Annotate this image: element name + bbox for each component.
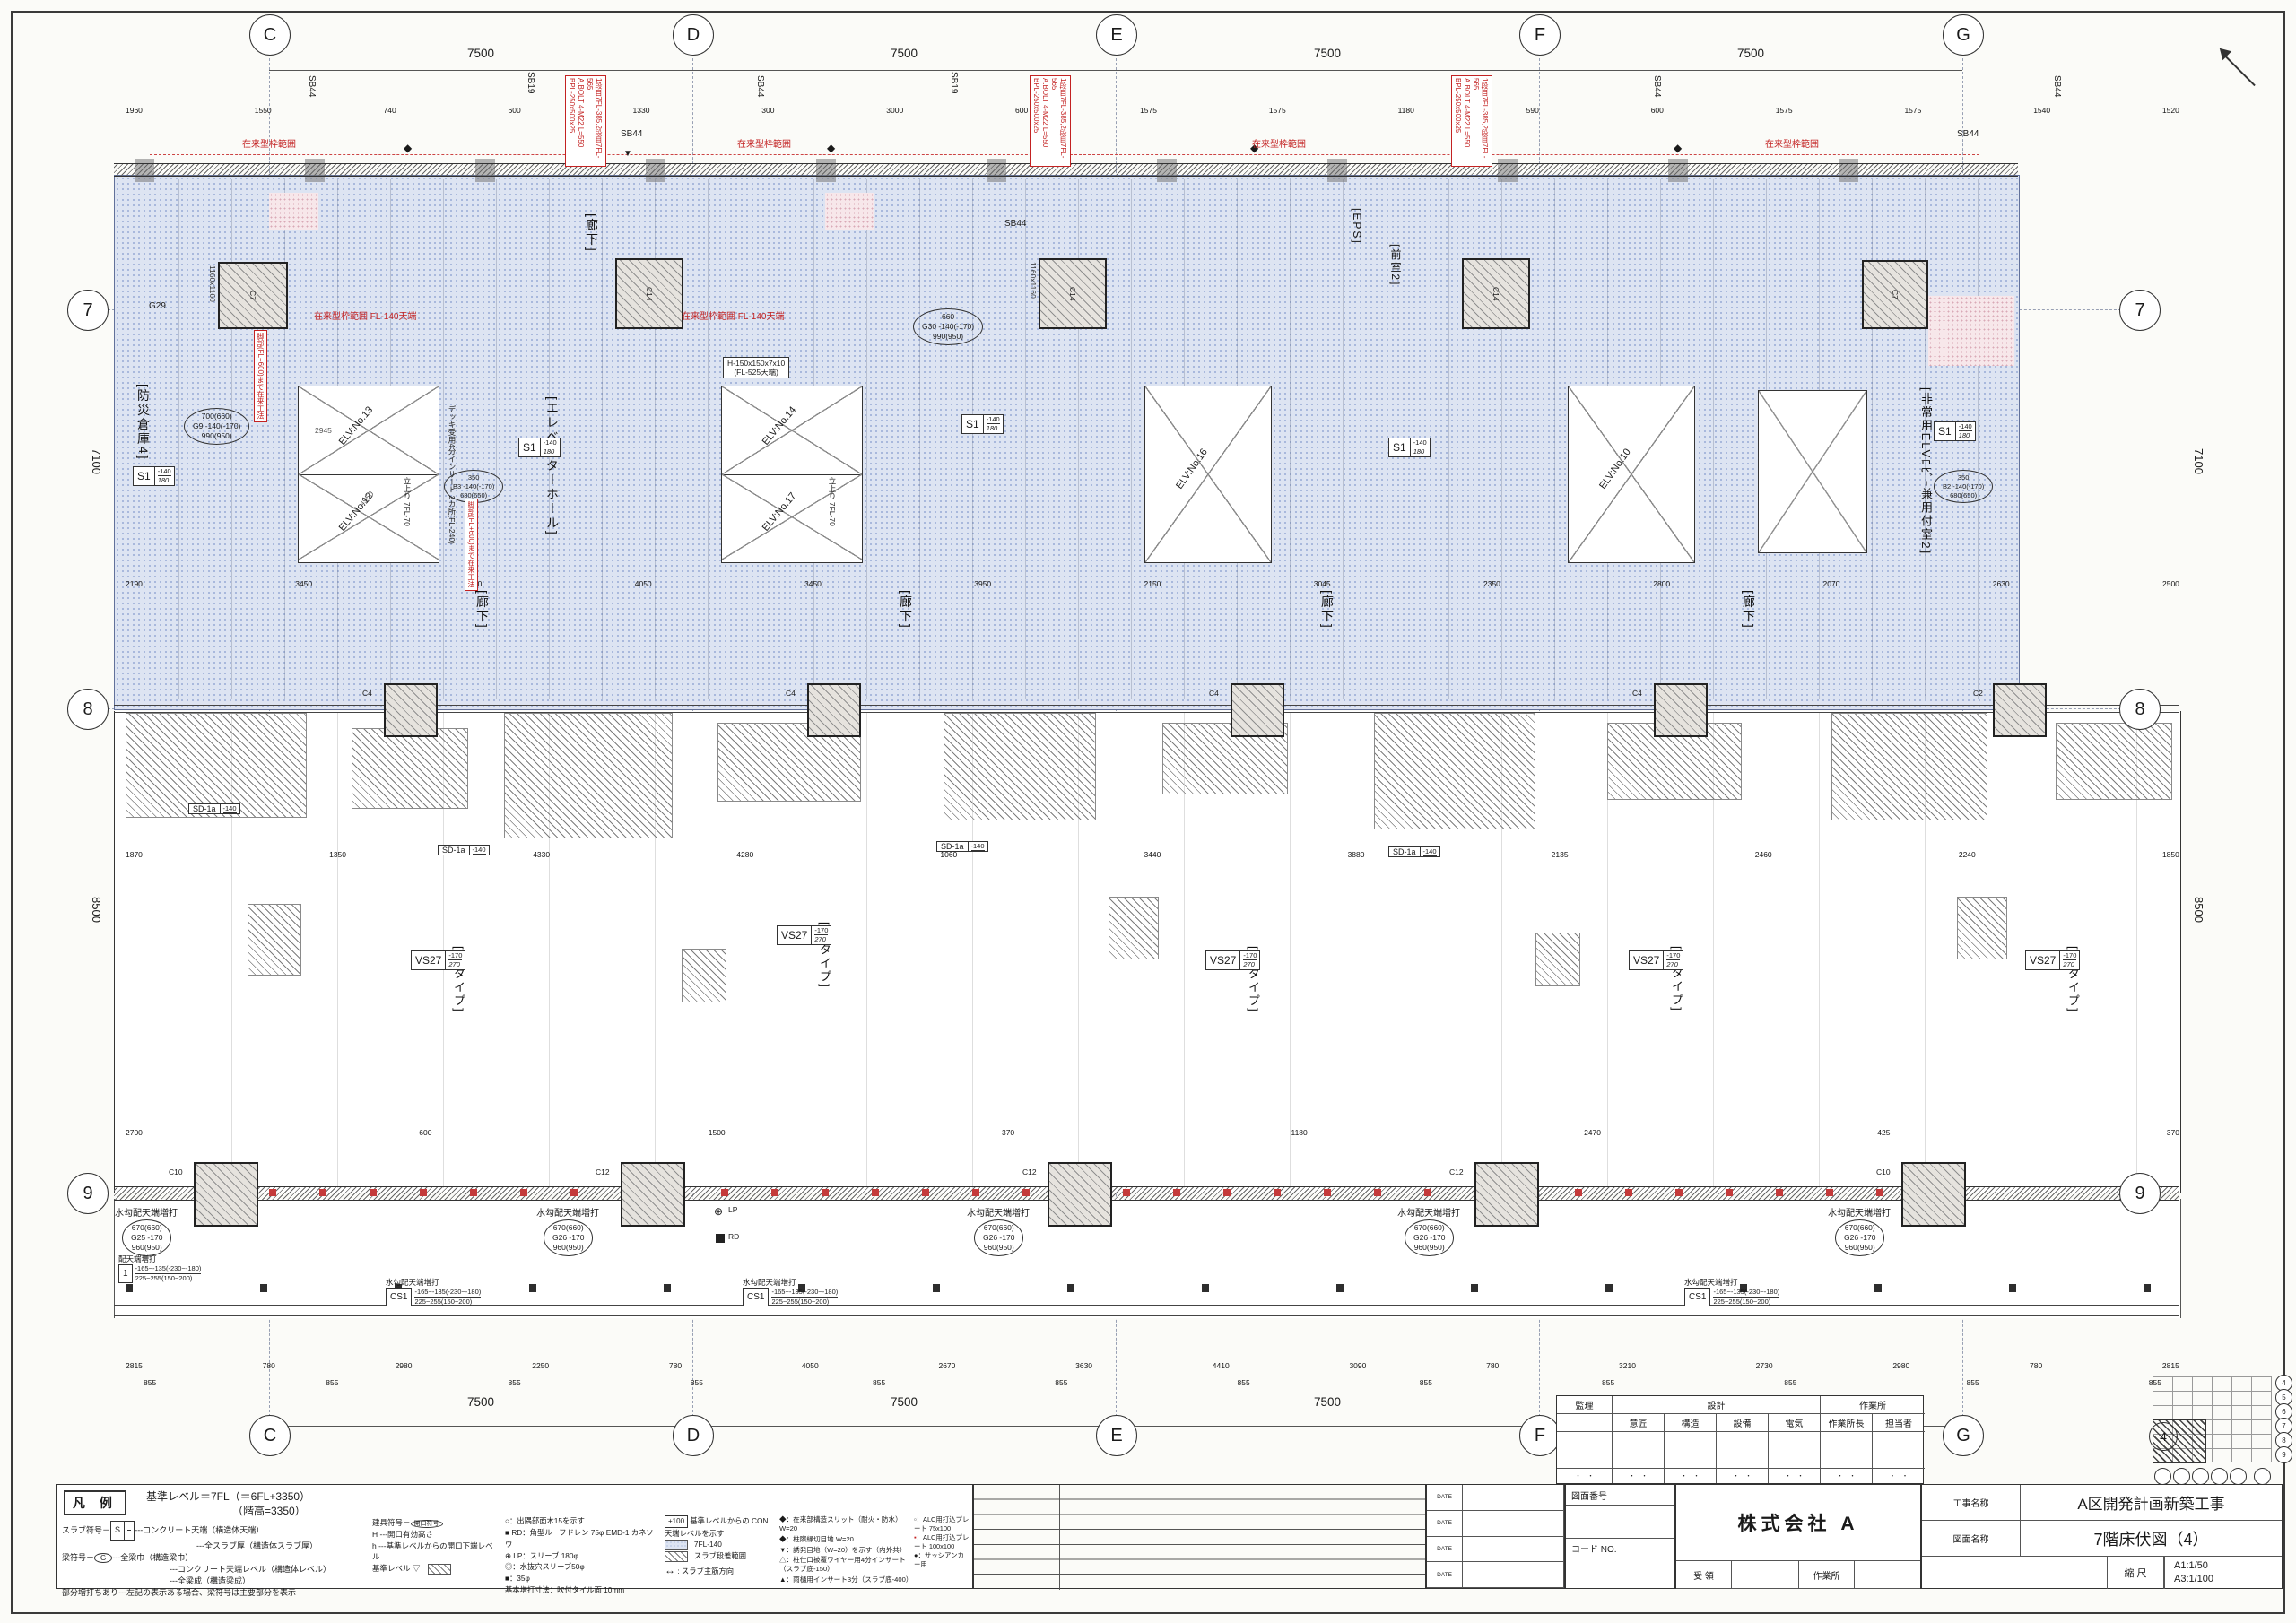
slab-thickness: 180 [158, 476, 171, 484]
slab-tag-S1: S1-140180 [133, 466, 175, 486]
baseplate-size: BPL-250x500x25 [1454, 78, 1462, 164]
column-tag-C4: C4 [1632, 689, 1642, 698]
legend-item: ◆：柱際縁切目地 W=20 [779, 1535, 910, 1544]
scale-a1: A1:1/50 [2174, 1559, 2282, 1573]
room-label-zenshitsu: [前室2] [1388, 244, 1404, 286]
column-size: 1160x1160 [208, 265, 217, 302]
drawing-title: 7階床伏図（4） [2021, 1521, 2282, 1556]
slab-step-hatch [248, 904, 301, 976]
legend-item: ◎：水抜穴スリーブ50φ [505, 1561, 659, 1573]
grid-bubble-G-bottom: G [1943, 1415, 1984, 1456]
date-dots: ・ ・ [1665, 1469, 1717, 1483]
dimension-text: 780 [669, 1361, 682, 1370]
slab-step-hatch [1374, 713, 1535, 829]
bay-dim: 7500 [1314, 47, 1341, 60]
slab-top-level: -170 [1666, 951, 1680, 960]
dimension-text: 4280 [736, 850, 753, 859]
drawing-sheet: C D E F G C D E F G 7 8 9 7 8 9 75007500… [0, 0, 2296, 1623]
date-dots: ・ ・ [1717, 1469, 1769, 1483]
beam-level: G26 -170 [552, 1233, 584, 1243]
legend-item: 基本増打寸法：吹付タイル面 10mm [505, 1584, 659, 1596]
alc-item-1: ▫：ALC用打込プレート 75x100 [914, 1515, 970, 1533]
worksite-person: 担当者 [1873, 1414, 1925, 1432]
code-number-value-empty [1566, 1558, 1674, 1588]
dimension-text: 1575 [1140, 106, 1157, 115]
column-tag: C7 [1891, 290, 1900, 299]
legend-symbols-left: スラブ符号－S ---コンクリート天端（構造体天端） ---全スラブ厚（構造体ス… [62, 1521, 331, 1599]
patch-pink-1 [269, 193, 318, 230]
dimension-text: 2815 [2162, 1361, 2179, 1370]
slab-tag-SD1a: SD-1a-140 [438, 845, 490, 855]
bay-dim: 7500 [891, 1395, 918, 1409]
plus100-icon: +100 [665, 1515, 688, 1528]
slab-step-hatch [1109, 897, 1159, 959]
dimension-text: 2815 [126, 1361, 143, 1370]
drawing-number-value-empty [1566, 1505, 1674, 1538]
dimension-text: 370 [1002, 1128, 1014, 1137]
slab-thickness: 180 [1413, 447, 1427, 456]
legend-item: ▲：雨樋用インサート3分（スラブ底-400） [779, 1575, 910, 1584]
balcony-edge-line-2 [114, 1315, 2179, 1316]
slope-note: 水勾配天端増打 [967, 1205, 1030, 1219]
date-label: DATE [1427, 1485, 1463, 1511]
slab-top-level: -170 [2063, 951, 2076, 960]
worksite-chief: 作業所長 [1821, 1414, 1873, 1432]
slab-top-level: -140 [971, 842, 985, 851]
grid-bubble-7-left: 7 [67, 290, 109, 331]
dimension-text: 3210 [1619, 1361, 1636, 1370]
legend-item: △：柱仕口被覆ワイヤー用4分インサート（スラブ底-150） [779, 1556, 910, 1574]
lp-sleeve-icon: ⊕ [714, 1205, 723, 1218]
dimension-text: 855 [873, 1378, 885, 1387]
beam-depth: 960(950) [983, 1243, 1014, 1253]
slab-tag-CS1: CS1 [743, 1288, 769, 1306]
blue-dots-desc: 7FL-140 [694, 1540, 722, 1549]
slab-top-level: -170 [1243, 951, 1257, 960]
beam-symbol-icon: G [94, 1553, 112, 1563]
room-label-elvhall: [エレベーターホール] [544, 396, 561, 536]
leg-note: 脚部(FL+600)まで在来工法 [254, 330, 267, 422]
beam-level: G25 -170 [131, 1233, 162, 1243]
grid-bubble-C-bottom: C [249, 1415, 291, 1456]
keyplan-col-bubble [2211, 1468, 2228, 1485]
dimension-text: 3450 [804, 579, 822, 588]
column-tag-C4: C4 [786, 689, 796, 698]
revision-table-divider [1059, 1485, 1060, 1590]
cs1-note: 水勾配天端増打 CS1 -165~-135(-230~-180)225~255(… [1684, 1277, 1779, 1306]
slope-note: 水勾配天端増打 [386, 1277, 481, 1288]
beam-width: 670(660) [1844, 1223, 1875, 1233]
scale-a3: A3:1/100 [2174, 1573, 2282, 1586]
beam-symbol-label: 梁符号 [62, 1553, 86, 1562]
slab-top-level: -165~-135(-230~-180) [135, 1264, 202, 1274]
slab-tag-1: 1 [118, 1264, 133, 1283]
baseplate-note: BPL-250x500x25A.BOLT 4-M22 L=5501段目7FL-3… [1451, 75, 1492, 167]
slab-tag-CS1: CS1 [386, 1288, 412, 1306]
bay-dim: 7500 [1737, 47, 1764, 60]
induced-joint-icon: ▼ [623, 149, 632, 159]
slab-tag-SD1a: SD-1a-140 [188, 803, 240, 814]
formwork-range-note: 在来型枠範囲 [242, 136, 296, 150]
slab-top-level: -140 [987, 415, 1000, 424]
dimension-text: 2350 [1483, 579, 1500, 588]
dimension-text: 1575 [1269, 106, 1286, 115]
elevator-shaft-4: ELV:No.10 [1568, 386, 1695, 563]
beam-level: G30 -140(-170) [922, 322, 974, 332]
grid-bubble-8-left: 8 [67, 689, 109, 730]
project-row: 工事名称 A区開発計画新築工事 [1922, 1485, 2282, 1521]
slab-top-level: -140 [1959, 422, 1972, 431]
slab-tag-S1: S1-140180 [961, 414, 1004, 434]
date-value-empty [1463, 1485, 1564, 1511]
formwork-range-note: 在来型枠範囲 [1252, 136, 1306, 150]
supervisor-header: 監理 [1557, 1396, 1613, 1414]
legend-alc-items: ▫：ALC用打込プレート 75x100 ▪：ALC用打込プレート 100x100… [914, 1515, 970, 1569]
beam-desc-1: ---全梁巾（構造梁巾） [112, 1553, 193, 1562]
formwork-range-note: 在来型枠範囲 [737, 136, 791, 150]
dimension-text: 3880 [1348, 850, 1365, 859]
top-dimension-line [269, 70, 1962, 71]
grid-bubble-C-top: C [249, 14, 291, 56]
company-bottom-row: 受 領 作業所 [1676, 1560, 1920, 1589]
drawing-number-label: 図面番号 [1566, 1485, 1674, 1505]
room-label-rouka: [廊下] [1740, 590, 1758, 629]
design-mech: 設備 [1717, 1414, 1769, 1432]
baseplate-note: BPL-250x500x25A.BOLT 4-M22 L=5501段目7FL-3… [1030, 75, 1071, 167]
code-number-label: コード NO. [1566, 1538, 1674, 1558]
column-C12-2 [1048, 1162, 1112, 1227]
bolt-levels: 1段目7FL-385,2段目7FL-565 [1472, 78, 1490, 164]
roof-drain-icon [716, 1234, 725, 1243]
column-tag-C10: C10 [169, 1167, 183, 1176]
anchor-bolt: A.BOLT 4-M22 L=550 [1041, 78, 1049, 164]
dimension-text: 3000 [886, 106, 903, 115]
slab-tag-symbol: SD-1a [439, 846, 470, 855]
column-tag: C14 [645, 287, 654, 301]
grid-bubble-G-top: G [1943, 14, 1984, 56]
scale-empty-cell [1922, 1557, 2107, 1589]
anchor-bolt: A.BOLT 4-M22 L=550 [577, 78, 585, 164]
column-C12-3 [1474, 1162, 1539, 1227]
title-block: 工事名称 A区開発計画新築工事 図面名称 7階床伏図（4） 縮 尺 A1:1/5… [1921, 1484, 2283, 1589]
dimension-text: 1850 [2162, 850, 2179, 859]
dimension-text: 855 [1602, 1378, 1614, 1387]
lp-label: LP [728, 1205, 737, 1214]
dimension-text: 740 [384, 106, 396, 115]
slab-desc-2: ---全スラブ厚（構造体スラブ厚） [196, 1541, 317, 1550]
grid-bubble-9-left: 9 [67, 1173, 109, 1214]
dimension-text: 2250 [532, 1361, 549, 1370]
door-desc-1: 開口有効高さ [387, 1530, 433, 1539]
hatch-desc: スラブ段差範囲 [694, 1551, 746, 1560]
date-value-empty [1463, 1537, 1564, 1563]
dimension-text: 1575 [1904, 106, 1921, 115]
slab-edge-note: 配天端増打 1 -165~-135(-230~-180)225~255(150~… [118, 1254, 201, 1283]
slope-note: 配天端増打 [118, 1254, 201, 1264]
slab-tag-VS27: VS27-170270 [1629, 950, 1683, 970]
grid-bubble-9-right: 9 [2119, 1173, 2161, 1214]
beam-depth: 960(950) [131, 1243, 162, 1253]
receive-value-empty [1732, 1561, 1799, 1589]
beam-tag-G30: 660G30 -140(-170)990(950) [913, 308, 983, 345]
date-table: DATE DATE DATE DATE [1426, 1484, 1565, 1589]
hatch-swatch-icon [665, 1551, 688, 1562]
above-grid9-dimensions: 2700600150037011802470425370 [126, 1128, 2179, 1137]
dimension-text: 4050 [635, 579, 652, 588]
slab-thickness: 180 [544, 447, 557, 456]
legend-item: ○：出隅部面木15を示す [505, 1515, 659, 1527]
column-C14-2: C14 [1039, 258, 1107, 329]
legend-circle-items: ○：出隅部面木15を示す■ RD：角型ルーフドレン 75φ EMD-1 カネソウ… [505, 1515, 659, 1596]
deck-insert-note: デッキ受用4分インサート 2カ所(FL-240) [447, 405, 457, 544]
beam-width: 670(660) [131, 1223, 162, 1233]
slab-step-hatch [126, 713, 307, 818]
beam-tag-G9: 700(660)G9 -140(-170)990(950) [184, 408, 249, 445]
dimension-text: 4330 [533, 850, 550, 859]
column-C14-1: C14 [615, 258, 683, 329]
room-label-bosai: [防災倉庫4] [135, 384, 152, 461]
floor-height-text: （階高=3350） [146, 1505, 310, 1519]
slab-thickness: 270 [1243, 960, 1257, 968]
column-C2 [1993, 683, 2047, 737]
dimension-text: 1180 [1291, 1128, 1307, 1137]
dimension-text: 2470 [1584, 1128, 1601, 1137]
column-tag-C10: C10 [1876, 1167, 1891, 1176]
dimension-text: 855 [691, 1378, 703, 1387]
dimension-text: 590 [1526, 106, 1539, 115]
xbox-sample-icon [428, 1564, 451, 1575]
dimension-text: 600 [1651, 106, 1664, 115]
door-symbol-icon: 開口符号 [411, 1520, 443, 1528]
date-dots: ・ ・ [1821, 1469, 1873, 1483]
alc-item-3: ●：サッシアンカー用 [914, 1551, 970, 1569]
dimension-text: 2980 [396, 1361, 413, 1370]
approval-subcell-empty [1557, 1414, 1613, 1432]
slope-note: 水勾配天端増打 [115, 1205, 178, 1219]
bay-dim: 7500 [891, 47, 918, 60]
base-level-text: 基準レベル＝7FL（＝6FL+3350） [146, 1490, 310, 1505]
beam-SB44: SB44 [621, 129, 642, 139]
column-C12-1 [621, 1162, 685, 1227]
vertical-dim-7100-right: 7100 [2192, 448, 2205, 474]
project-label: 工事名称 [1922, 1485, 2021, 1520]
date-value-empty [1463, 1562, 1564, 1588]
column-tag-C12: C12 [596, 1167, 610, 1176]
dimension-text: 855 [1784, 1378, 1796, 1387]
beam-width: 670(660) [983, 1223, 1014, 1233]
dimension-text: 2630 [1993, 579, 2010, 588]
date-label: DATE [1427, 1511, 1463, 1537]
grid-bubble-D-top: D [673, 14, 714, 56]
stamp-cell-empty [1821, 1432, 1873, 1469]
steel-column-note: H-150x150x7x10 (FL-525天端) [723, 357, 789, 378]
column-C7-1: C7 [218, 262, 288, 329]
slab-thickness: 225~255(150~200) [414, 1298, 481, 1306]
legend-item: ⊕ LP：スリーブ 180φ [505, 1550, 659, 1562]
slab-tag-S1: S1-140180 [1388, 438, 1431, 457]
cs1-note: 水勾配天端増打 CS1 -165~-135(-230~-180)225~255(… [743, 1277, 838, 1306]
dimension-text: 3630 [1075, 1361, 1092, 1370]
company-name: 株式会社 A [1676, 1485, 1920, 1560]
dimension-text: 855 [326, 1378, 338, 1387]
elevator-shaft-1: ELV:No.13 ELV:No.12 2945 4950 [298, 386, 439, 563]
beam-width: 350 [453, 473, 494, 482]
elevator-label: ELV:No.16 [1174, 447, 1210, 490]
slab-top-level: -140 [223, 804, 237, 813]
column-C10-1 [194, 1162, 258, 1227]
elevator-label: ELV:No.14 [761, 404, 799, 447]
scale-label: 縮 尺 [2107, 1557, 2164, 1589]
scale-values: A1:1/50 A3:1/100 [2164, 1557, 2282, 1589]
legend-box: 凡 例 基準レベル＝7FL（＝6FL+3350） （階高=3350） スラブ符号… [56, 1484, 973, 1589]
dimension-text: 1550 [255, 106, 272, 115]
column-C4-3 [1231, 683, 1284, 737]
slab-thickness: 270 [1666, 960, 1680, 968]
date-dots: ・ ・ [1613, 1469, 1665, 1483]
dimension-text: 855 [1055, 1378, 1067, 1387]
design-struct: 構造 [1665, 1414, 1717, 1432]
dimension-text: 370 [2167, 1128, 2179, 1137]
beam-depth: 960(950) [552, 1243, 584, 1253]
elevator-cab-14: ELV:No.14 [722, 386, 862, 475]
dimension-text: 1350 [329, 850, 346, 859]
column-tag-C12: C12 [1022, 1167, 1037, 1176]
revision-table [973, 1484, 1426, 1589]
slope-note: 水勾配天端増打 [536, 1205, 599, 1219]
beam-width: 350 [1943, 473, 1984, 482]
slab-tag-VS27: VS27-170270 [777, 925, 831, 945]
column-C14-3: C14 [1462, 258, 1530, 329]
design-header: 設計 [1613, 1396, 1821, 1414]
elevator-label: ELV:No.10 [1597, 447, 1633, 490]
legend-base-level: 基準レベル＝7FL（＝6FL+3350） （階高=3350） [146, 1490, 310, 1518]
top-sub-dimensions: 1960155074060013303003000600157515751180… [126, 106, 2179, 115]
slab-symbol-label: スラブ符号 [62, 1525, 102, 1534]
slab-tag-symbol: SD-1a [1389, 847, 1421, 856]
beam-level: G26 -170 [1844, 1233, 1875, 1243]
elevator-shaft-2: ELV:No.14 ELV:No.17 [721, 386, 863, 563]
column-C4-1 [384, 683, 438, 737]
slab-tag-symbol: SD-1a [189, 804, 221, 813]
formwork-level-note: 在来型枠範囲 FL-140天端 [682, 308, 784, 322]
column-tag: C14 [1492, 287, 1500, 301]
column-tag-C4: C4 [362, 689, 372, 698]
slab-tag-VS27: VS27-170270 [1205, 950, 1260, 970]
grid-bubble-E-top: E [1096, 14, 1137, 56]
dimension-text: 4410 [1213, 1361, 1230, 1370]
slab-top-level: -140 [1413, 438, 1427, 447]
beam-level: G26 -170 [1413, 1233, 1445, 1243]
room-label-eps: [EPS] [1351, 208, 1363, 245]
slab-step-hatch [1957, 897, 2007, 959]
lower-dimensions: 1870135043304280106034403880213524602240… [126, 850, 2179, 859]
column-tag: C7 [248, 291, 257, 300]
slope-note: 水勾配天端増打 [1828, 1205, 1891, 1219]
legend-door-symbol: 建具符号－開口符号 H ---開口有効高さ h ---基準レベルからの開口下端レ… [372, 1517, 500, 1575]
slab-top-level: -170 [814, 926, 828, 935]
dimension-text: 2460 [1755, 850, 1772, 859]
company-block: 株式会社 A 受 領 作業所 [1675, 1484, 1921, 1589]
stamp-cell-empty [1613, 1432, 1665, 1469]
slab-tag-symbol: VS27 [1206, 951, 1240, 969]
slab-step-hatch [682, 949, 726, 1002]
dimension-text: 1180 [1398, 106, 1414, 115]
keyplan-col-bubble [2192, 1468, 2209, 1485]
dimension-text: 425 [1877, 1128, 1890, 1137]
slab-step-hatch [1831, 713, 1987, 820]
beam-note: 部分増打ちあり---左記の表示ある場合、梁符号は主要部分を表示 [62, 1588, 296, 1597]
column-C7-2: C7 [1862, 260, 1928, 329]
elevator-shaft-5 [1758, 390, 1867, 553]
grid-bubble-7-right: 7 [2119, 290, 2161, 331]
slab-thickness: 270 [2063, 960, 2076, 968]
dimension-text: 4050 [802, 1361, 819, 1370]
slab-tag-SD1a: SD-1a-140 [1388, 846, 1440, 857]
dimension-text: 2500 [2162, 579, 2179, 588]
elevator-cab-12: ELV:No.12 [299, 474, 439, 560]
dimension-text: 1960 [126, 106, 143, 115]
keyplan-row-9: 9 [2275, 1446, 2292, 1463]
elevator-cab-17: ELV:No.17 [722, 474, 862, 560]
baseplate-size: BPL-250x500x25 [1032, 78, 1040, 164]
beam-depth: 990(950) [922, 332, 974, 342]
keyplan-col-bubble [2254, 1468, 2271, 1485]
dimension-text: 2980 [1892, 1361, 1909, 1370]
rd-label: RD [728, 1232, 739, 1241]
beam-level: G9 -140(-170) [193, 421, 240, 431]
column-C10-2 [1901, 1162, 1966, 1227]
slab-top-level: -140 [158, 467, 171, 476]
stamp-cell-empty [1557, 1432, 1613, 1469]
patch-pink-2 [825, 193, 874, 230]
slab-tag-CS1: CS1 [1684, 1288, 1710, 1306]
bottom-dimensions-2: 855855855855855855855855855855855855 [143, 1378, 2161, 1387]
beam-SB44: SB44 [307, 75, 317, 97]
worksite-label: 作業所 [1799, 1561, 1855, 1589]
dimension-text: 2670 [938, 1361, 955, 1370]
formwork-range-note: 在来型枠範囲 [1765, 136, 1819, 150]
room-label-hijo-elv: [非常用ELVﾛﾋﾞｰ兼用付室2] [1918, 387, 1935, 555]
blue-dots-swatch-icon [665, 1540, 688, 1550]
stamp-cell-empty [1717, 1432, 1769, 1469]
slab-tag-VS27: VS27-170270 [411, 950, 465, 970]
keyplan-col-bubble [2154, 1468, 2171, 1485]
dimension-text: 2190 [126, 579, 143, 588]
beam-desc-3: ---全梁成（構造梁成） [170, 1576, 250, 1585]
elevator-label: ELV:No.13 [337, 404, 376, 447]
legend-item: ◆：在来部構造スリット（耐火・防水） W=20 [779, 1515, 910, 1533]
slab-step-hatch [2056, 723, 2172, 800]
cs1-note: 水勾配天端増打 CS1 -165~-135(-230~-180)225~255(… [386, 1277, 481, 1306]
slab-top-level: -140 [1423, 847, 1437, 856]
dimension-text: 3440 [1144, 850, 1161, 859]
slab-tag-symbol: S1 [519, 438, 541, 456]
grid-bubble-D-bottom: D [673, 1415, 714, 1456]
slab-tag-symbol: VS27 [412, 951, 446, 969]
slab-top-level: -170 [448, 951, 462, 960]
dimension-text: 1520 [2162, 106, 2179, 115]
grid-bubble-F-top: F [1519, 14, 1561, 56]
design-elec: 電気 [1769, 1414, 1821, 1432]
legend-level-items: +100 基準レベルからの CON天端レベルを示す : 7FL-140 : スラ… [665, 1515, 774, 1578]
column-C4-4 [1654, 683, 1708, 737]
drawing-number-block: 図面番号 コード NO. [1565, 1484, 1675, 1589]
slab-thickness: 225~255(150~200) [1713, 1298, 1779, 1306]
upstand-note: 立上り 7FL-70 [827, 477, 838, 526]
bay-dim: 7500 [1314, 1395, 1341, 1409]
column-size: 1160x1160 [1029, 262, 1038, 299]
beam-width: 670(660) [1413, 1223, 1445, 1233]
